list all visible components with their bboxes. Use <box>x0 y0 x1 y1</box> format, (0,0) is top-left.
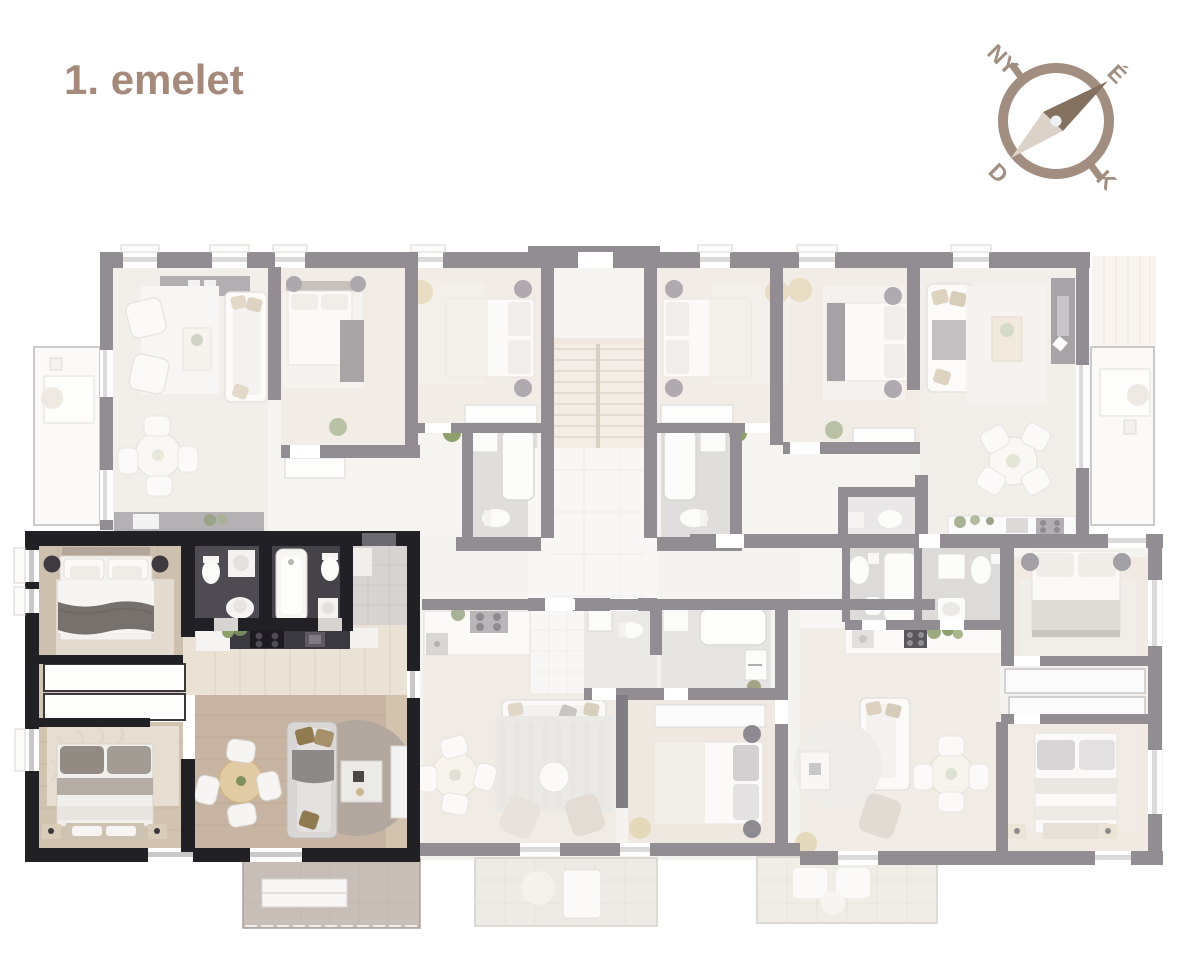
svg-text:1. emelet: 1. emelet <box>64 56 244 103</box>
